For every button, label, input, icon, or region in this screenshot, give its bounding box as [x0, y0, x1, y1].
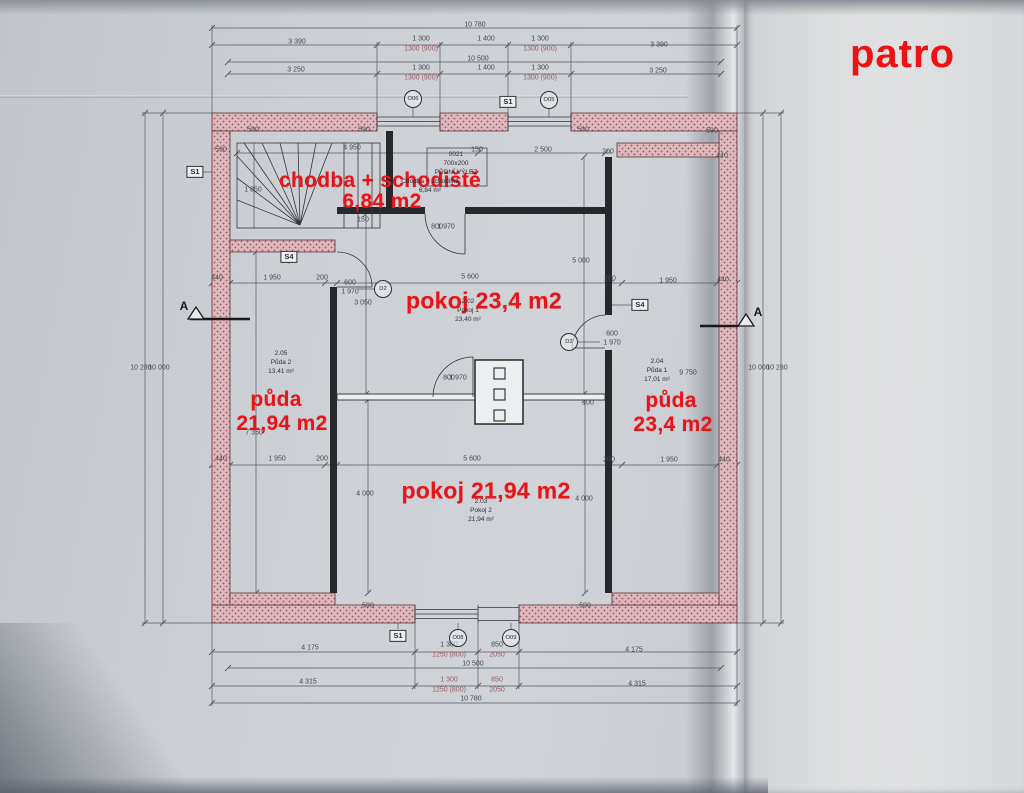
dim-71: 1 970	[449, 375, 467, 382]
dim-60: 590	[577, 127, 589, 134]
dim-73: 4 000	[356, 491, 374, 498]
marker-s4-right: S4	[631, 299, 648, 311]
dim-41: 1 950	[659, 278, 677, 285]
label-pokoj2-red: pokoj 21,94 m2	[401, 478, 570, 505]
marker-door-o09: O09	[502, 629, 520, 647]
dim-57: 150	[471, 147, 483, 154]
dim-14: 1300 (900)	[523, 75, 557, 82]
partition-walls	[337, 394, 605, 400]
marker-door-d2-right: D2	[560, 333, 578, 351]
windows	[377, 113, 571, 623]
dim-66: 3 050	[354, 300, 372, 307]
dim-58: 590	[247, 127, 259, 134]
sheet-title-patro: patro	[850, 32, 955, 77]
room-vylez: 0021700x200PŮDNÍ VÝLEZ	[435, 151, 478, 177]
dim-37: 200	[316, 275, 328, 282]
dim-69: 1 970	[437, 224, 455, 231]
dim-22: 10 500	[462, 661, 483, 668]
room-chodba: Chodba + schodiště6,84 m²	[401, 178, 459, 196]
dim-11: 1300 (900)	[404, 75, 438, 82]
dim-25: 1250 (800)	[432, 687, 466, 694]
dim-21: 4 175	[625, 647, 643, 654]
dim-68: 800	[431, 224, 443, 231]
dim-28: 4 315	[628, 681, 646, 688]
dim-56: 200	[602, 149, 614, 156]
dim-39: 1 970	[341, 289, 359, 296]
dim-18: 1250 (800)	[432, 652, 466, 659]
section-a-left: A	[180, 299, 189, 313]
dim-38: 600	[344, 280, 356, 287]
room-pokoj2: 2.03Pokoj 221,94 m²	[468, 498, 494, 524]
marker-window-o08: O08	[449, 629, 467, 647]
dim-75: 7 350	[245, 430, 263, 437]
dim-65: 1 850	[244, 187, 262, 194]
loft-hatch-outline	[427, 148, 487, 186]
dim-53: 5 600	[461, 274, 479, 281]
dim-59: 590	[358, 127, 370, 134]
room-puda2: 2.05Půda 213,41 m²	[268, 350, 294, 376]
dim-45: 1 970	[603, 340, 621, 347]
label-chodba-red: chodba + schodiště	[279, 169, 481, 193]
marker-window-o06: O06	[404, 90, 422, 108]
dim-1: 3 390	[288, 39, 306, 46]
dim-27: 2050	[489, 687, 505, 694]
label-puda-left-area-red: 21,94 m2	[236, 412, 327, 436]
dim-51: 1 950	[660, 457, 678, 464]
dim-46: 440	[215, 456, 227, 463]
dim-7: 3 390	[650, 42, 668, 49]
dim-13: 1 300	[531, 65, 549, 72]
marker-door-d2-left: D2	[374, 280, 392, 298]
room-pokoj1: 2.02Pokoj 123,40 m²	[455, 298, 481, 324]
dim-4: 1 400	[477, 36, 495, 43]
dim-12: 1 400	[477, 65, 495, 72]
dim-55: 2 500	[534, 147, 552, 154]
dim-9: 3 250	[287, 67, 305, 74]
dim-62: 590	[362, 603, 374, 610]
dim-64: 150	[357, 217, 369, 224]
dim-36: 1 950	[263, 275, 281, 282]
paper-corner-shadow	[0, 623, 310, 793]
dim-6: 1300 (900)	[523, 46, 557, 53]
chimney-block	[475, 360, 523, 424]
dim-20: 2050	[489, 652, 505, 659]
dim-17: 1 300	[440, 642, 458, 649]
scanned-floor-plan-sheet: chodba + schodiště6,84 m2pokoj 23,4 m2pů…	[0, 0, 1024, 793]
paper-right-sheet	[744, 0, 1024, 793]
dim-31: 10 000	[148, 365, 169, 372]
dim-19: 850	[491, 642, 503, 649]
dim-54: 4 950	[343, 145, 361, 152]
paper-top-edge	[0, 0, 1024, 15]
marker-window-o05: O05	[540, 91, 558, 109]
dim-26: 850	[491, 677, 503, 684]
dim-0: 10 780	[464, 22, 485, 29]
dim-72: 100	[582, 400, 594, 407]
room-puda1: 2.04Půda 117,01 m²	[644, 358, 670, 384]
section-markers	[188, 307, 754, 326]
dim-8: 10 500	[467, 56, 488, 63]
hatched-walls	[212, 113, 737, 623]
dim-47: 1 950	[268, 456, 286, 463]
dim-67: 5 000	[572, 258, 590, 265]
dim-35: 440	[211, 275, 223, 282]
paper-fold-shadow	[686, 0, 744, 793]
dim-10: 1 300	[412, 65, 430, 72]
door-swings	[337, 214, 605, 397]
label-pokoj1-red: pokoj 23,4 m2	[406, 288, 562, 315]
dim-48: 200	[316, 456, 328, 463]
dim-34: 590	[215, 147, 227, 154]
label-chodba-area-red: 6,84 m2	[342, 190, 421, 214]
dim-44: 600	[606, 331, 618, 338]
dim-3: 1300 (900)	[404, 46, 438, 53]
paper-bottom-edge	[0, 777, 768, 793]
dim-15: 3 250	[649, 68, 667, 75]
dim-24: 1 300	[440, 677, 458, 684]
dim-29: 10 780	[460, 696, 481, 703]
dim-74: 4 000	[575, 496, 593, 503]
dim-2: 1 300	[412, 36, 430, 43]
marker-s1-bottom: S1	[389, 630, 406, 642]
dim-70: 800	[443, 375, 455, 382]
dim-30: 10 280	[130, 365, 151, 372]
marker-s4-left: S4	[280, 251, 297, 263]
marker-s1-left: S1	[186, 166, 203, 178]
dim-63: 590	[579, 603, 591, 610]
staircase	[237, 143, 380, 228]
interior-walls	[330, 131, 612, 593]
dim-5: 1 300	[531, 36, 549, 43]
paper-crease	[0, 95, 688, 98]
dim-49: 5 600	[463, 456, 481, 463]
label-puda-left-red: půda	[250, 388, 301, 412]
dim-40: 200	[604, 276, 616, 283]
dim-50: 200	[603, 457, 615, 464]
